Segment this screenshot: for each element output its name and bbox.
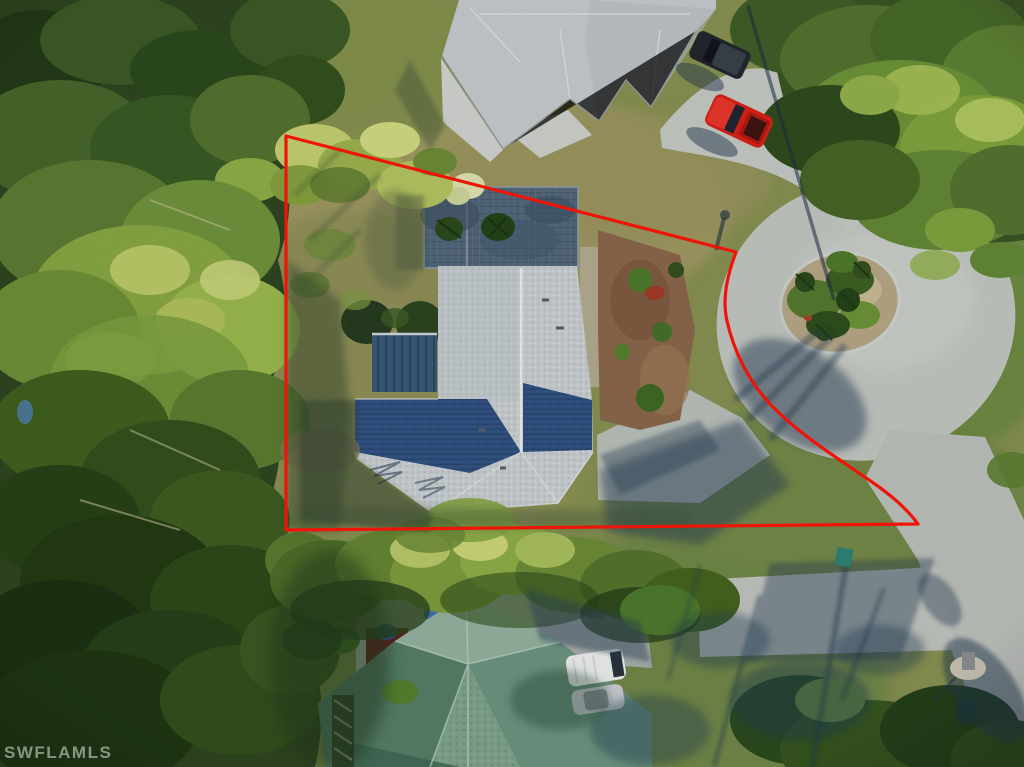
watermark: SWFLAMLS	[4, 743, 112, 763]
aerial-photo: SWFLAMLS	[0, 0, 1024, 767]
grain-overlay	[0, 0, 1024, 767]
